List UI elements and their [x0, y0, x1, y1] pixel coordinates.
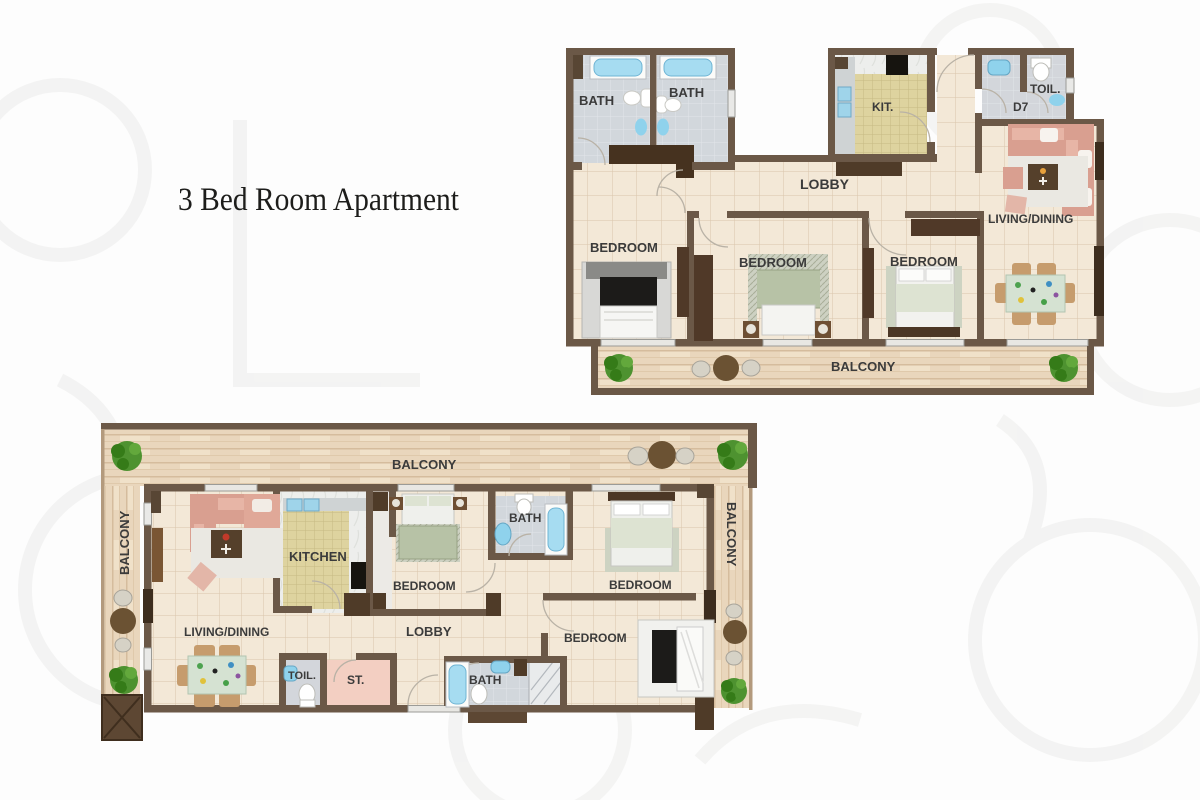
svg-text:3 Bed Room Apartment: 3 Bed Room Apartment: [178, 182, 459, 218]
svg-text:BATH: BATH: [469, 673, 501, 687]
svg-text:D7: D7: [1013, 100, 1029, 114]
svg-text:BALCONY: BALCONY: [831, 359, 896, 374]
svg-text:BALCONY: BALCONY: [117, 510, 132, 575]
svg-text:BATH: BATH: [669, 85, 704, 100]
svg-text:TOIL.: TOIL.: [288, 670, 316, 682]
svg-text:LIVING/DINING: LIVING/DINING: [184, 625, 269, 639]
svg-text:BEDROOM: BEDROOM: [564, 631, 627, 645]
svg-text:BEDROOM: BEDROOM: [890, 254, 958, 269]
svg-text:BATH: BATH: [509, 511, 541, 525]
svg-text:BALCONY: BALCONY: [724, 502, 739, 567]
svg-text:BEDROOM: BEDROOM: [739, 255, 807, 270]
svg-text:BEDROOM: BEDROOM: [393, 579, 456, 593]
svg-text:TOIL.: TOIL.: [1030, 82, 1060, 96]
svg-text:LOBBY: LOBBY: [406, 624, 452, 639]
svg-text:KIT.: KIT.: [872, 100, 893, 114]
svg-text:LOBBY: LOBBY: [800, 176, 850, 192]
svg-text:ST.: ST.: [347, 673, 364, 687]
svg-text:BEDROOM: BEDROOM: [590, 240, 658, 255]
svg-text:BALCONY: BALCONY: [392, 457, 457, 472]
svg-text:LIVING/DINING: LIVING/DINING: [988, 212, 1073, 226]
svg-text:BEDROOM: BEDROOM: [609, 578, 672, 592]
svg-text:BATH: BATH: [579, 93, 614, 108]
svg-text:KITCHEN: KITCHEN: [289, 549, 347, 564]
